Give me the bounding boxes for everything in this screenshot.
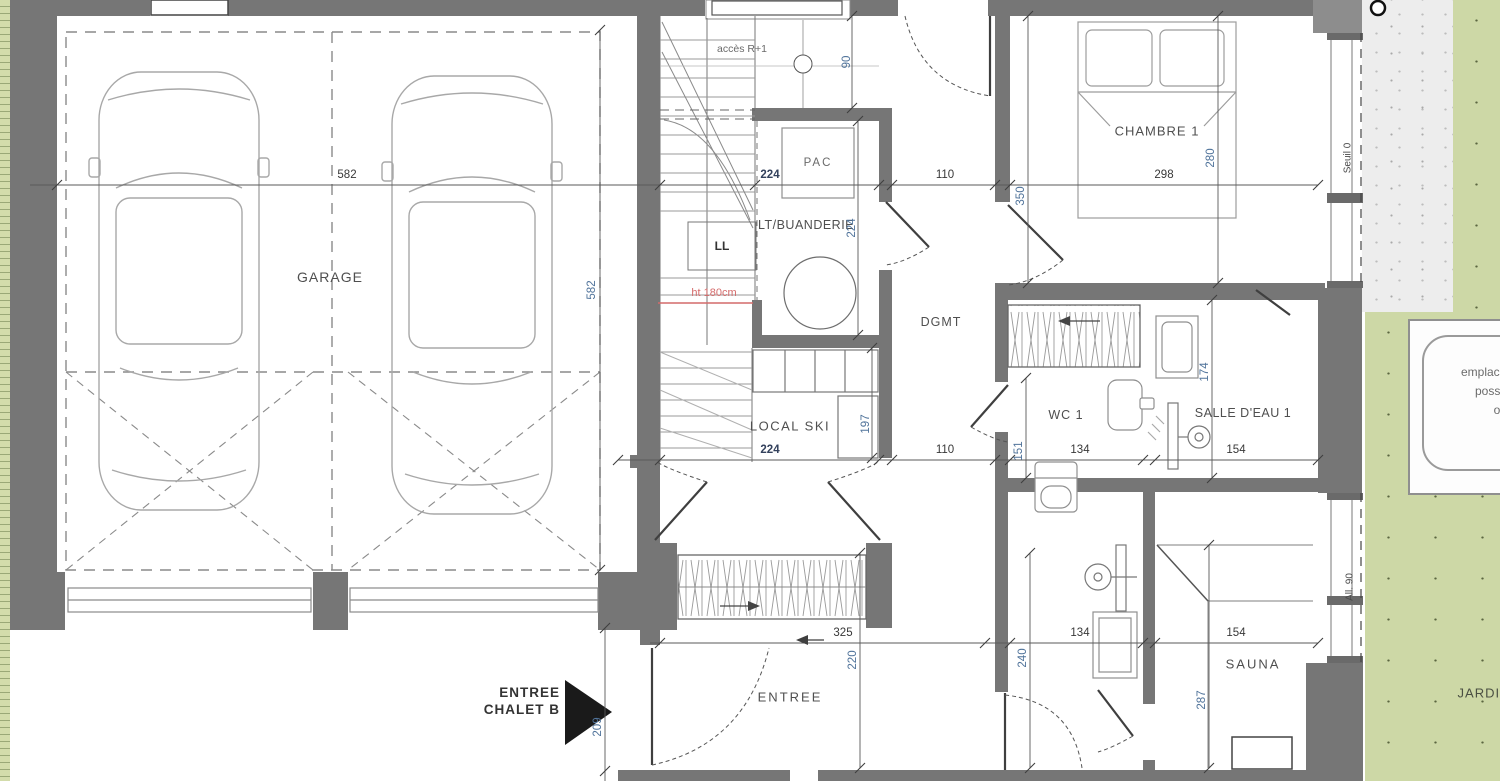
label-washing-machine: LL: [715, 239, 730, 253]
label-entree-chalet-b: ENTREE CHALET B: [448, 684, 560, 718]
room-label-dgmt: DGMT: [921, 315, 962, 329]
entree-chalet-line1: ENTREE: [448, 684, 560, 701]
emplacement-text-3: o: [1494, 403, 1500, 417]
double-door-local-ski: [655, 482, 880, 540]
room-label-wc1: WC 1: [1048, 408, 1083, 422]
emplacement-box-inner: [1422, 335, 1500, 471]
emplacement-text-2: possible: [1475, 384, 1500, 398]
dim-buanderie-depth: 224: [846, 218, 858, 237]
hall-closet: [1008, 305, 1140, 367]
door-leaf-chambre: [1008, 205, 1063, 260]
staircase: [658, 16, 879, 462]
washer-circle: [784, 257, 856, 329]
dim-ski-width: 224: [760, 444, 779, 456]
dim-douche-depth: 240: [1017, 648, 1029, 667]
dim-buanderie-width: 224: [760, 169, 779, 181]
emplacement-text-1: emplacement: [1461, 365, 1500, 379]
room-label-local-ski: LOCAL SKI: [750, 419, 830, 434]
dim-hall-top: 110: [936, 169, 954, 181]
dim-closet-width: 325: [833, 627, 852, 639]
dim-sde-depth: 174: [1199, 362, 1211, 381]
car-2: [382, 76, 562, 514]
door-leaf-buanderie: [886, 202, 929, 247]
room-label-chambre1: CHAMBRE 1: [1115, 124, 1200, 139]
dim-sde-width: 154: [1226, 444, 1245, 456]
dim-sauna-depth: 287: [1196, 690, 1208, 709]
door-leaf-douche-2: [1098, 690, 1133, 736]
dim-garage-width: 582: [337, 169, 356, 181]
bath-furniture: [1093, 612, 1137, 678]
dim-chambre-left: 350: [1015, 186, 1027, 205]
parking-bay-dashes: [66, 32, 600, 570]
dim-entree-depth: 220: [847, 650, 859, 669]
entree-chalet-line2: CHALET B: [448, 701, 560, 718]
room-label-sauna: SAUNA: [1226, 657, 1281, 672]
label-allege: All. 90: [1345, 573, 1356, 601]
dim-entry-side: 209: [592, 717, 604, 736]
dim-chambre-width: 298: [1154, 169, 1173, 181]
label-jardin: JARDIN: [1458, 686, 1500, 701]
dim-sauna-width: 154: [1226, 627, 1245, 639]
wc-sink: [1108, 380, 1154, 430]
door-leaf-wc: [971, 385, 1008, 427]
emplacement-box: emplacement possible o: [1408, 319, 1500, 495]
dim-wc-width: 134: [1070, 444, 1089, 456]
room-label-salle-eau1: SALLE D'EAU 1: [1195, 406, 1291, 420]
bed: [1078, 22, 1236, 218]
dim-garage-depth: 582: [586, 280, 598, 299]
room-label-buanderie: LT/BUANDERIE: [758, 218, 854, 232]
bathroom-vanity: [1156, 316, 1198, 378]
label-seuil: Seuil 0: [1343, 143, 1354, 174]
shower-2: [1085, 545, 1137, 611]
room-label-pac: PAC: [804, 157, 833, 169]
label-height-note: ht 180cm: [691, 287, 736, 299]
car-1: [89, 72, 269, 510]
floor-plan: emplacement possible o GARAGE accès R+1 …: [0, 0, 1500, 781]
dim-douche-width: 134: [1070, 627, 1089, 639]
dim-stair-top: 90: [841, 56, 853, 69]
room-label-garage: GARAGE: [297, 269, 363, 285]
label-acces-r1: accès R+1: [717, 43, 767, 55]
room-label-entree: ENTREE: [758, 690, 823, 705]
dim-hall-mid: 110: [936, 444, 954, 456]
dim-chambre-depth: 280: [1205, 148, 1217, 167]
toilet: [1035, 462, 1077, 512]
dim-ski-depth: 197: [860, 414, 872, 433]
dim-wc-offset: 151: [1013, 441, 1025, 460]
